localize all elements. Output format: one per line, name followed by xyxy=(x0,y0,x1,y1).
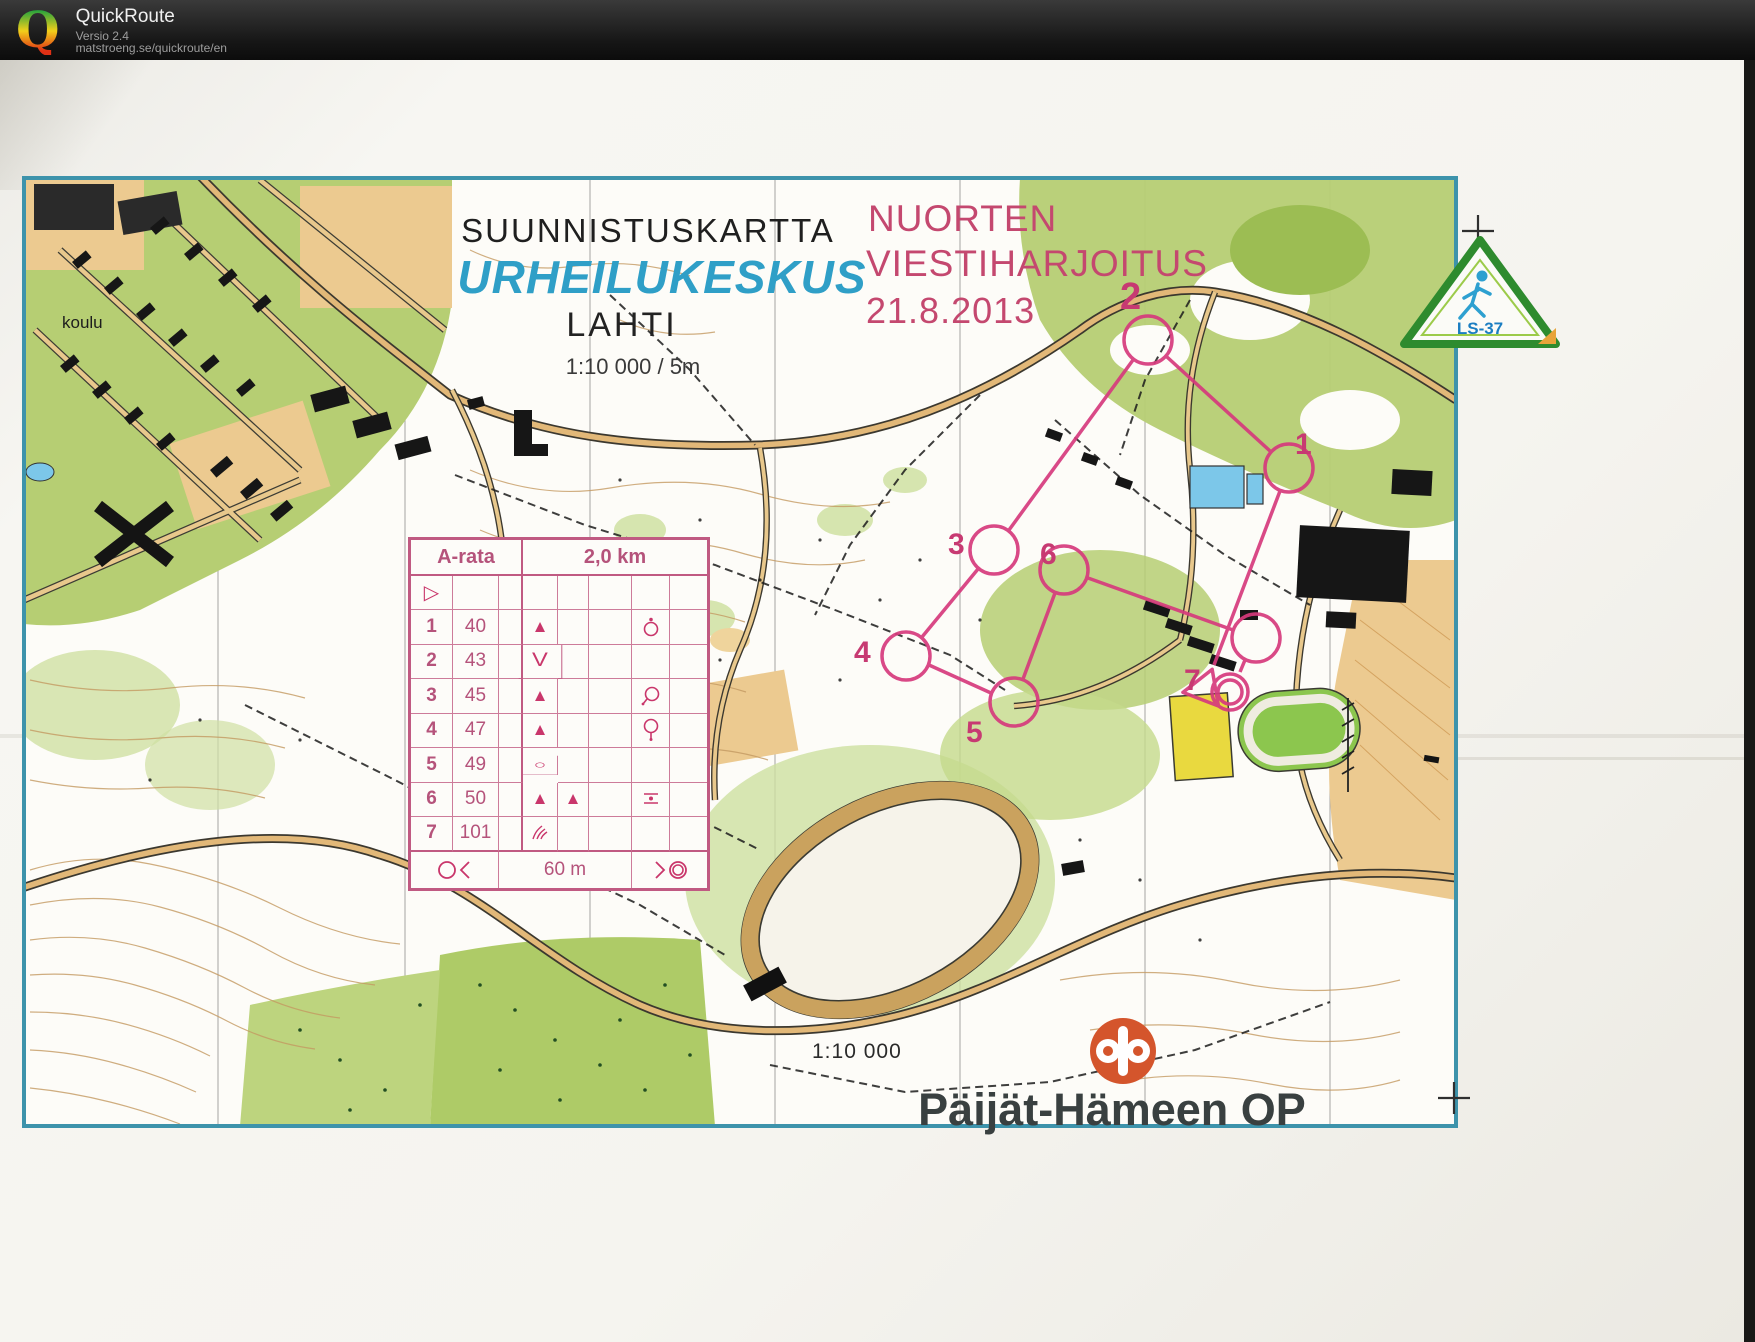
course-name: A-rata xyxy=(411,540,523,576)
circle-stem-icon xyxy=(632,714,670,749)
control-number-1: 1 xyxy=(1295,428,1312,462)
app-title: QuickRoute xyxy=(76,7,227,27)
map-city-title: LAHTI xyxy=(402,306,842,345)
app-header: Q QuickRoute Versio 2.4 matstroeng.se/qu… xyxy=(0,0,1755,60)
control-code-cell: 40 xyxy=(453,610,499,645)
climb-text: 60 m xyxy=(499,852,632,889)
gully-icon xyxy=(523,817,558,852)
control-number-4: 4 xyxy=(854,636,871,670)
control-number-cell: 5 xyxy=(411,748,453,783)
taped-route-start-icon xyxy=(411,852,499,889)
control-code-cell: 43 xyxy=(453,645,499,680)
ls37-text: LS-37 xyxy=(1457,319,1503,338)
quickroute-logo-icon: Q xyxy=(16,5,60,55)
op-bank-logo xyxy=(1088,1016,1158,1086)
sponsor-name: Päijät-Hämeen OP xyxy=(877,1084,1347,1136)
control-number-cell: 1 xyxy=(411,610,453,645)
control-number-cell: 6 xyxy=(411,783,453,818)
event-date: 21.8.2013 xyxy=(866,290,1035,332)
map-name-title: URHEILUKESKUS xyxy=(412,250,912,304)
circle-tail-icon xyxy=(632,679,670,714)
control-number-cell: 4 xyxy=(411,714,453,749)
pond xyxy=(26,463,54,481)
knoll-ellipse-icon: ○ xyxy=(523,756,558,775)
control-flag-icon: ▲ xyxy=(523,679,558,714)
control-code-cell: 50 xyxy=(453,783,499,818)
control-number-cell: 2 xyxy=(411,645,453,680)
dot-between-lines-icon xyxy=(632,783,670,818)
school-label: koulu xyxy=(62,313,103,333)
control-description-table: A-rata 2,0 km ▷ 1 40 ▲ 2 43 V 3 45 ▲ xyxy=(408,537,710,891)
ls37-club-logo: LS-37 xyxy=(1398,232,1563,360)
event-title-line1: NUORTEN xyxy=(868,198,1057,240)
control-number-5: 5 xyxy=(966,716,983,750)
app-header-meta: QuickRoute Versio 2.4 matstroeng.se/quic… xyxy=(76,5,227,55)
control-code-cell: 47 xyxy=(453,714,499,749)
control-number-7: 7 xyxy=(1184,664,1201,698)
control-flag-icon: ▲ xyxy=(523,783,558,818)
control-flag-icon: ▲ xyxy=(558,783,589,818)
bottom-scale-label: 1:10 000 xyxy=(812,1040,902,1064)
control-code-cell: 101 xyxy=(453,817,499,852)
course-length: 2,0 km xyxy=(523,540,707,576)
boulder-marked-side-icon xyxy=(632,610,670,645)
taped-route-finish-icon xyxy=(632,852,707,889)
app-url[interactable]: matstroeng.se/quickroute/en xyxy=(76,42,227,55)
map-scale-line: 1:10 000 / 5m xyxy=(518,354,748,380)
control-number-6: 6 xyxy=(1040,538,1057,572)
control-code-cell: 45 xyxy=(453,679,499,714)
control-number-2: 2 xyxy=(1120,276,1141,319)
start-symbol-cell: ▷ xyxy=(411,576,453,610)
control-code-cell: 49 xyxy=(453,748,499,783)
map-kind-title: SUUNNISTUSKARTTA xyxy=(428,212,868,250)
control-number-3: 3 xyxy=(948,528,965,562)
event-title-line2: VIESTIHARJOITUS xyxy=(866,243,1208,285)
control-flag-icon: ▲ xyxy=(523,714,558,749)
control-flag-icon: ▲ xyxy=(523,610,558,645)
v-symbol-icon: V xyxy=(519,645,563,680)
control-number-cell: 7 xyxy=(411,817,453,852)
quickroute-window: Q QuickRoute Versio 2.4 matstroeng.se/qu… xyxy=(0,0,1755,1342)
control-number-cell: 3 xyxy=(411,679,453,714)
